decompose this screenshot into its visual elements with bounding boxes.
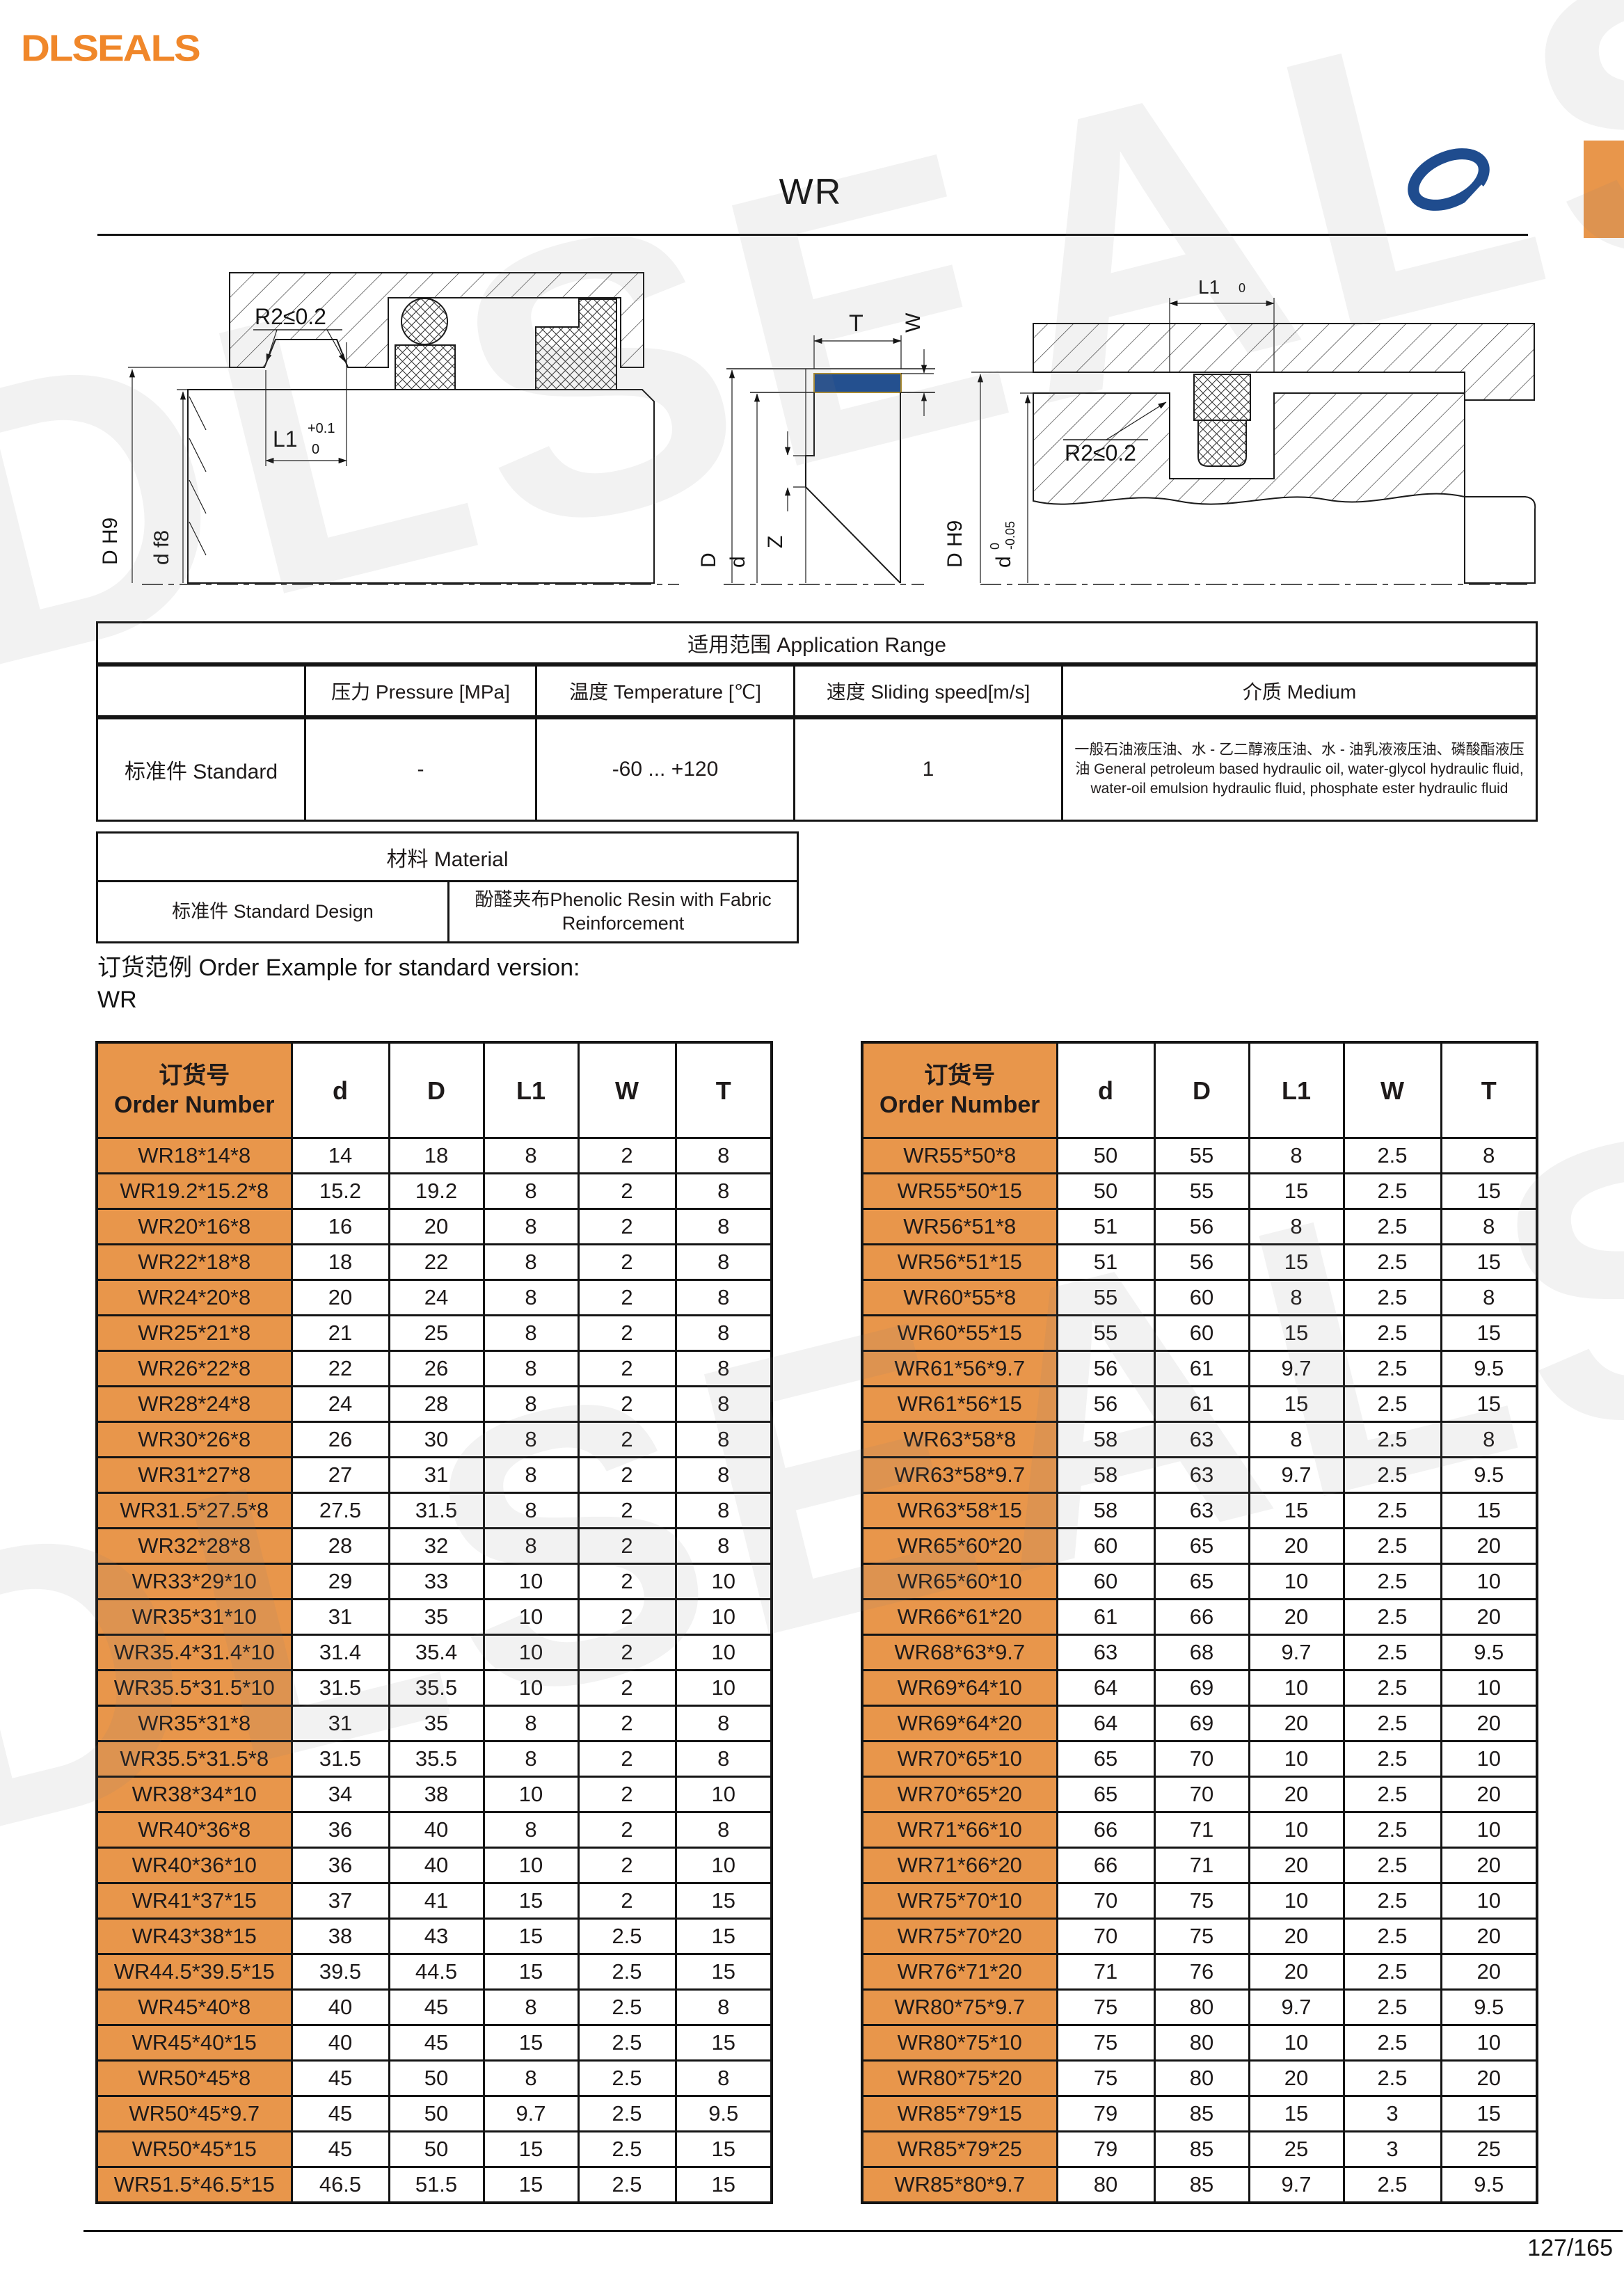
table-row: WR45*40*154045152.515 xyxy=(97,2025,772,2061)
size-table-left: 订货号 Order Number d D L1 W T WR18*14*8141… xyxy=(95,1041,773,2204)
order-number-cell: WR38*34*10 xyxy=(97,1777,292,1812)
dimension-cell: 10 xyxy=(1249,1741,1344,1777)
right-l1-tol: 0 xyxy=(1239,281,1245,295)
dimension-cell: 15 xyxy=(484,2025,578,2061)
order-number-cell: WR69*64*20 xyxy=(862,1706,1057,1741)
dimension-cell: 2.5 xyxy=(1344,2061,1441,2096)
dimension-cell: 15 xyxy=(676,2167,772,2203)
dimension-cell: 15 xyxy=(1441,1245,1537,1280)
dimension-cell: 21 xyxy=(292,1316,389,1351)
dimension-cell: 63 xyxy=(1154,1458,1249,1493)
dimension-cell: 10 xyxy=(1249,1812,1344,1848)
dimension-cell: 8 xyxy=(1441,1138,1537,1174)
dimension-cell: 26 xyxy=(389,1351,484,1387)
col-header-D: D xyxy=(1154,1042,1249,1138)
dimension-cell: 60 xyxy=(1154,1316,1249,1351)
dimension-cell: 31 xyxy=(292,1706,389,1741)
dimension-cell: 8 xyxy=(484,1706,578,1741)
dimension-cell: 10 xyxy=(676,1635,772,1671)
dimension-cell: 75 xyxy=(1057,1990,1154,2025)
empty-header-cell xyxy=(97,664,305,717)
table-row: WR70*65*206570202.520 xyxy=(862,1777,1537,1812)
dimension-cell: 8 xyxy=(484,1812,578,1848)
dimension-cell: 2.5 xyxy=(578,2096,676,2132)
dimension-cell: 50 xyxy=(1057,1138,1154,1174)
order-number-header: 订货号 Order Number xyxy=(862,1042,1057,1138)
dimension-cell: 79 xyxy=(1057,2096,1154,2132)
dimension-cell: 34 xyxy=(292,1777,389,1812)
order-number-cell: WR80*75*20 xyxy=(862,2061,1057,2096)
table-row: WR40*36*83640828 xyxy=(97,1812,772,1848)
dimension-cell: 2.5 xyxy=(1344,1919,1441,1954)
table-row: WR61*56*9.756619.72.59.5 xyxy=(862,1351,1537,1387)
table-row: WR38*34*10343810210 xyxy=(97,1777,772,1812)
material-title: 材料 Material xyxy=(97,833,798,882)
dimension-cell: 15 xyxy=(676,1954,772,1990)
order-number-cell: WR30*26*8 xyxy=(97,1422,292,1458)
dimension-cell: 2 xyxy=(578,1316,676,1351)
dimension-cell: 2.5 xyxy=(1344,1777,1441,1812)
technical-drawings: D H9 d f8 L1 +0.1 0 R2≤0.2 xyxy=(90,257,1552,612)
dimension-cell: 2.5 xyxy=(1344,1209,1441,1245)
dimension-cell: 40 xyxy=(389,1848,484,1883)
table-row: WR35*31*10313510210 xyxy=(97,1600,772,1635)
dimension-cell: 10 xyxy=(484,1600,578,1635)
dimension-cell: 10 xyxy=(1441,1812,1537,1848)
dimension-cell: 18 xyxy=(389,1138,484,1174)
dimension-cell: 8 xyxy=(1249,1280,1344,1316)
dimension-cell: 24 xyxy=(389,1280,484,1316)
dimension-cell: 31 xyxy=(389,1458,484,1493)
dimension-cell: 66 xyxy=(1154,1600,1249,1635)
table-row: WR25*21*82125828 xyxy=(97,1316,772,1351)
dimension-cell: 38 xyxy=(389,1777,484,1812)
dimension-cell: 9.5 xyxy=(1441,1990,1537,2025)
dimension-cell: 15.2 xyxy=(292,1174,389,1209)
dimension-cell: 41 xyxy=(389,1883,484,1919)
table-row: WR50*45*8455082.58 xyxy=(97,2061,772,2096)
dimension-cell: 8 xyxy=(484,1351,578,1387)
second-seal-section xyxy=(536,299,616,390)
sliding-speed-value: 1 xyxy=(795,717,1062,821)
dimension-cell: 2.5 xyxy=(1344,1564,1441,1600)
order-number-cell: WR80*75*9.7 xyxy=(862,1990,1057,2025)
wiper-seal-section xyxy=(395,345,455,390)
dimension-cell: 2 xyxy=(578,1812,676,1848)
dimension-cell: 18 xyxy=(292,1245,389,1280)
order-number-cell: WR85*80*9.7 xyxy=(862,2167,1057,2203)
dimension-cell: 29 xyxy=(292,1564,389,1600)
right-l1-label: L1 xyxy=(1198,276,1220,298)
dimension-cell: 51.5 xyxy=(389,2167,484,2203)
dimension-cell: 9.5 xyxy=(1441,2167,1537,2203)
dimension-cell: 50 xyxy=(1057,1174,1154,1209)
table-row: WR60*55*8556082.58 xyxy=(862,1280,1537,1316)
order-number-cell: WR50*45*9.7 xyxy=(97,2096,292,2132)
dimension-cell: 35.5 xyxy=(389,1741,484,1777)
t-label: T xyxy=(849,310,863,337)
table-row: WR22*18*81822828 xyxy=(97,1245,772,1280)
dimension-cell: 8 xyxy=(1249,1138,1344,1174)
dimension-cell: 2.5 xyxy=(1344,1600,1441,1635)
right-label-d: d xyxy=(992,556,1015,568)
dimension-cell: 8 xyxy=(484,1741,578,1777)
dimension-cell: 3 xyxy=(1344,2132,1441,2167)
dimension-cell: 8 xyxy=(484,1138,578,1174)
dimension-cell: 24 xyxy=(292,1387,389,1422)
table-row: WR43*38*153843152.515 xyxy=(97,1919,772,1954)
dimension-cell: 9.7 xyxy=(1249,1351,1344,1387)
dimension-cell: 63 xyxy=(1057,1635,1154,1671)
dimension-cell: 80 xyxy=(1154,1990,1249,2025)
dimension-cell: 45 xyxy=(389,1990,484,2025)
dimension-cell: 60 xyxy=(1154,1280,1249,1316)
dimension-cell: 10 xyxy=(1249,2025,1344,2061)
table-row: WR70*65*106570102.510 xyxy=(862,1741,1537,1777)
dimension-cell: 16 xyxy=(292,1209,389,1245)
dimension-cell: 15 xyxy=(676,1883,772,1919)
dimension-cell: 33 xyxy=(389,1564,484,1600)
order-number-cell: WR28*24*8 xyxy=(97,1387,292,1422)
table-row: WR71*66*206671202.520 xyxy=(862,1848,1537,1883)
dimension-cell: 15 xyxy=(1441,1387,1537,1422)
dimension-cell: 2.5 xyxy=(1344,1529,1441,1564)
pressure-value: - xyxy=(305,717,536,821)
table-row: WR50*45*9.745509.72.59.5 xyxy=(97,2096,772,2132)
dimension-cell: 10 xyxy=(676,1848,772,1883)
dimension-cell: 45 xyxy=(292,2132,389,2167)
dimension-cell: 20 xyxy=(1249,1848,1344,1883)
table-row: WR56*51*155156152.515 xyxy=(862,1245,1537,1280)
housing-top-block xyxy=(1033,324,1534,400)
dimension-cell: 15 xyxy=(484,1919,578,1954)
dimension-cell: 45 xyxy=(292,2096,389,2132)
dimension-cell: 51 xyxy=(1057,1209,1154,1245)
right-label-d-tol-upper: 0 xyxy=(988,543,1002,550)
dimension-cell: 64 xyxy=(1057,1671,1154,1706)
order-number-cell: WR18*14*8 xyxy=(97,1138,292,1174)
dimension-cell: 35.5 xyxy=(389,1671,484,1706)
dimension-cell: 15 xyxy=(1249,1174,1344,1209)
dimension-cell: 19.2 xyxy=(389,1174,484,1209)
order-number-cell: WR45*40*15 xyxy=(97,2025,292,2061)
table-row: WR40*36*10364010210 xyxy=(97,1848,772,1883)
dimension-cell: 2 xyxy=(578,1280,676,1316)
dimension-cell: 8 xyxy=(484,2061,578,2096)
dimension-cell: 27.5 xyxy=(292,1493,389,1529)
dimension-cell: 8 xyxy=(676,1422,772,1458)
table-row: WR61*56*155661152.515 xyxy=(862,1387,1537,1422)
dimension-cell: 56 xyxy=(1057,1387,1154,1422)
dimension-cell: 20 xyxy=(1249,1529,1344,1564)
dimension-cell: 39.5 xyxy=(292,1954,389,1990)
order-number-cell: WR35*31*10 xyxy=(97,1600,292,1635)
order-number-cell: WR85*79*25 xyxy=(862,2132,1057,2167)
o-ring-section xyxy=(401,298,447,344)
dimension-cell: 8 xyxy=(484,1387,578,1422)
dimension-cell: 56 xyxy=(1154,1245,1249,1280)
mid-label-d: d xyxy=(726,556,749,568)
dimension-cell: 37 xyxy=(292,1883,389,1919)
dimension-cell: 9.5 xyxy=(1441,1635,1537,1671)
dimension-cell: 66 xyxy=(1057,1812,1154,1848)
dimension-cell: 70 xyxy=(1154,1777,1249,1812)
dimension-cell: 71 xyxy=(1154,1848,1249,1883)
table-row: WR45*40*8404582.58 xyxy=(97,1990,772,2025)
seal-ring-icon xyxy=(1406,146,1496,216)
dimension-cell: 8 xyxy=(484,1174,578,1209)
dimension-cell: 80 xyxy=(1154,2061,1249,2096)
table-row: WR66*61*206166202.520 xyxy=(862,1600,1537,1635)
dimension-cell: 20 xyxy=(1441,1706,1537,1741)
order-number-cell: WR68*63*9.7 xyxy=(862,1635,1057,1671)
dimension-cell: 2.5 xyxy=(1344,1387,1441,1422)
dimension-cell: 10 xyxy=(484,1671,578,1706)
dimension-cell: 2 xyxy=(578,1883,676,1919)
dimension-cell: 20 xyxy=(1441,1954,1537,1990)
dimension-cell: 15 xyxy=(484,2132,578,2167)
dimension-cell: 2 xyxy=(578,1493,676,1529)
dimension-cell: 2 xyxy=(578,1245,676,1280)
title-rule xyxy=(97,234,1528,236)
dimension-cell: 2 xyxy=(578,1387,676,1422)
dimension-cell: 80 xyxy=(1057,2167,1154,2203)
rod-outline xyxy=(1465,497,1535,583)
dimension-cell: 75 xyxy=(1057,2025,1154,2061)
dimension-cell: 31 xyxy=(292,1600,389,1635)
dimension-cell: 36 xyxy=(292,1848,389,1883)
right-label-d-tol-lower: -0.05 xyxy=(1003,521,1017,550)
dimension-cell: 15 xyxy=(484,2167,578,2203)
dimension-cell: 65 xyxy=(1154,1529,1249,1564)
dimension-cell: 20 xyxy=(1441,1529,1537,1564)
dimension-cell: 2 xyxy=(578,1174,676,1209)
dimension-cell: 63 xyxy=(1154,1493,1249,1529)
dimension-cell: 76 xyxy=(1154,1954,1249,1990)
order-number-cell: WR61*56*9.7 xyxy=(862,1351,1057,1387)
dimension-cell: 75 xyxy=(1057,2061,1154,2096)
catalog-page: DLSEALS WR xyxy=(0,0,1624,2296)
dimension-cell: 15 xyxy=(1441,1493,1537,1529)
order-number-cell: WR80*75*10 xyxy=(862,2025,1057,2061)
order-number-cell: WR63*58*8 xyxy=(862,1422,1057,1458)
dimension-cell: 45 xyxy=(389,2025,484,2061)
order-number-cell: WR71*66*20 xyxy=(862,1848,1057,1883)
dimension-cell: 45 xyxy=(292,2061,389,2096)
dimension-cell: 2.5 xyxy=(1344,1280,1441,1316)
dimension-cell: 14 xyxy=(292,1138,389,1174)
dimension-cell: 31.5 xyxy=(389,1493,484,1529)
dimension-cell: 15 xyxy=(484,1954,578,1990)
order-example-line2: WR xyxy=(97,984,580,1016)
dimension-cell: 8 xyxy=(676,1812,772,1848)
dimension-cell: 9.5 xyxy=(1441,1351,1537,1387)
dimension-cell: 2.5 xyxy=(1344,1883,1441,1919)
dimension-cell: 61 xyxy=(1154,1351,1249,1387)
wiper-seal-upper xyxy=(1194,374,1250,420)
order-example-line1: 订货范例 Order Example for standard version: xyxy=(97,952,580,984)
l1-tol-upper: +0.1 xyxy=(308,421,335,436)
dimension-cell: 10 xyxy=(1441,2025,1537,2061)
dimension-cell: 8 xyxy=(676,1280,772,1316)
drawing-left-section: D H9 d f8 L1 +0.1 0 R2≤0.2 xyxy=(99,273,679,584)
dimension-cell: 2.5 xyxy=(1344,1493,1441,1529)
col-header-L1: L1 xyxy=(1249,1042,1344,1138)
dimension-cell: 8 xyxy=(676,1387,772,1422)
col-header-W: W xyxy=(578,1042,676,1138)
order-number-cell: WR71*66*10 xyxy=(862,1812,1057,1848)
col-header-T: T xyxy=(1441,1042,1537,1138)
dimension-cell: 70 xyxy=(1057,1919,1154,1954)
footer-rule xyxy=(83,2230,1623,2232)
pressure-header: 压力 Pressure [MPa] xyxy=(305,664,536,717)
drawing-free-profile: T W Z D d xyxy=(697,310,935,584)
dimension-cell: 28 xyxy=(292,1529,389,1564)
dimension-cell: 10 xyxy=(1249,1671,1344,1706)
dimension-cell: 8 xyxy=(676,1351,772,1387)
dimension-cell: 65 xyxy=(1154,1564,1249,1600)
dimension-cell: 10 xyxy=(484,1564,578,1600)
dimension-cell: 20 xyxy=(292,1280,389,1316)
dimension-cell: 2.5 xyxy=(1344,2025,1441,2061)
dimension-cell: 2.5 xyxy=(1344,1741,1441,1777)
temperature-header: 温度 Temperature [℃] xyxy=(536,664,795,717)
dimension-cell: 58 xyxy=(1057,1493,1154,1529)
dimension-cell: 35 xyxy=(389,1706,484,1741)
dimension-cell: 55 xyxy=(1057,1316,1154,1351)
dimension-cell: 15 xyxy=(676,2132,772,2167)
dimension-cell: 8 xyxy=(676,2061,772,2096)
order-number-cell: WR75*70*10 xyxy=(862,1883,1057,1919)
dimension-cell: 70 xyxy=(1057,1883,1154,1919)
dimension-cell: 10 xyxy=(1441,1883,1537,1919)
z-label: Z xyxy=(764,536,787,548)
table-row: WR28*24*82428828 xyxy=(97,1387,772,1422)
dim-label-D-H9: D H9 xyxy=(99,518,122,565)
dimension-cell: 36 xyxy=(292,1812,389,1848)
dimension-cell: 55 xyxy=(1154,1174,1249,1209)
dimension-cell: 9.7 xyxy=(484,2096,578,2132)
table-row: WR63*58*155863152.515 xyxy=(862,1493,1537,1529)
order-number-cell: WR55*50*15 xyxy=(862,1174,1057,1209)
dimension-cell: 22 xyxy=(292,1351,389,1387)
order-number-cell: WR69*64*10 xyxy=(862,1671,1057,1706)
dimension-cell: 2.5 xyxy=(578,2025,676,2061)
table-row: WR32*28*82832828 xyxy=(97,1529,772,1564)
mid-label-D: D xyxy=(697,552,720,568)
dimension-cell: 8 xyxy=(1441,1422,1537,1458)
table-row: WR63*58*8586382.58 xyxy=(862,1422,1537,1458)
col-header-W: W xyxy=(1344,1042,1441,1138)
dimension-cell: 31.5 xyxy=(292,1741,389,1777)
dimension-cell: 79 xyxy=(1057,2132,1154,2167)
dimension-cell: 85 xyxy=(1154,2096,1249,2132)
table-row: WR20*16*81620828 xyxy=(97,1209,772,1245)
dimension-cell: 10 xyxy=(1441,1564,1537,1600)
dimension-cell: 2.5 xyxy=(1344,1706,1441,1741)
dimension-cell: 51 xyxy=(1057,1245,1154,1280)
dimension-cell: 2 xyxy=(578,1706,676,1741)
table-row: WR75*70*207075202.520 xyxy=(862,1919,1537,1954)
dimension-cell: 65 xyxy=(1057,1777,1154,1812)
medium-header: 介质 Medium xyxy=(1062,664,1537,717)
table-row: WR30*26*82630828 xyxy=(97,1422,772,1458)
dimension-cell: 35.4 xyxy=(389,1635,484,1671)
dimension-cell: 10 xyxy=(484,1848,578,1883)
order-number-cell: WR75*70*20 xyxy=(862,1919,1057,1954)
dimension-cell: 80 xyxy=(1154,2025,1249,2061)
dimension-cell: 8 xyxy=(484,1422,578,1458)
dimension-cell: 8 xyxy=(676,1316,772,1351)
col-header-L1: L1 xyxy=(484,1042,578,1138)
dimension-cell: 2.5 xyxy=(1344,1848,1441,1883)
dimension-cell: 2 xyxy=(578,1138,676,1174)
dimension-cell: 40 xyxy=(292,2025,389,2061)
dimension-cell: 10 xyxy=(1441,1741,1537,1777)
order-number-cell: WR25*21*8 xyxy=(97,1316,292,1351)
table-row: WR85*80*9.780859.72.59.5 xyxy=(862,2167,1537,2203)
order-number-cell: WR35.5*31.5*10 xyxy=(97,1671,292,1706)
dimension-cell: 60 xyxy=(1057,1564,1154,1600)
table-row: WR35.4*31.4*1031.435.410210 xyxy=(97,1635,772,1671)
dimension-cell: 2 xyxy=(578,1351,676,1387)
dimension-cell: 9.5 xyxy=(1441,1458,1537,1493)
dimension-cell: 31.5 xyxy=(292,1671,389,1706)
dimension-cell: 2 xyxy=(578,1422,676,1458)
dimension-cell: 64 xyxy=(1057,1706,1154,1741)
order-number-cell: WR50*45*8 xyxy=(97,2061,292,2096)
order-number-cell: WR60*55*15 xyxy=(862,1316,1057,1351)
dimension-cell: 10 xyxy=(676,1777,772,1812)
dimension-cell: 2.5 xyxy=(1344,1812,1441,1848)
dimension-cell: 32 xyxy=(389,1529,484,1564)
dimension-cell: 8 xyxy=(484,1529,578,1564)
dimension-cell: 2.5 xyxy=(578,2132,676,2167)
standard-row-label: 标准件 Standard xyxy=(97,717,305,821)
dimension-cell: 85 xyxy=(1154,2132,1249,2167)
order-number-cell: WR70*65*20 xyxy=(862,1777,1057,1812)
page-number: 127/165 xyxy=(1404,2235,1613,2262)
dimension-cell: 8 xyxy=(484,1458,578,1493)
application-range-table: 适用范围 Application Range 压力 Pressure [MPa]… xyxy=(96,621,1538,822)
l1-label: L1 xyxy=(273,426,298,452)
dimension-cell: 2 xyxy=(578,1209,676,1245)
dimension-cell: 20 xyxy=(1249,1777,1344,1812)
dimension-cell: 2 xyxy=(578,1671,676,1706)
dimension-cell: 75 xyxy=(1154,1919,1249,1954)
dimension-cell: 28 xyxy=(389,1387,484,1422)
application-range-title: 适用范围 Application Range xyxy=(97,623,1537,665)
col-header-D: D xyxy=(389,1042,484,1138)
order-number-cell: WR22*18*8 xyxy=(97,1245,292,1280)
shaft-outline xyxy=(188,390,654,583)
table-row: WR19.2*15.2*815.219.2828 xyxy=(97,1174,772,1209)
dimension-cell: 58 xyxy=(1057,1422,1154,1458)
dimension-cell: 15 xyxy=(1249,1387,1344,1422)
dimension-cell: 20 xyxy=(389,1209,484,1245)
dimension-cell: 56 xyxy=(1057,1351,1154,1387)
order-number-cell: WR43*38*15 xyxy=(97,1919,292,1954)
dimension-cell: 2.5 xyxy=(1344,1351,1441,1387)
table-row: WR80*75*107580102.510 xyxy=(862,2025,1537,2061)
dimension-cell: 20 xyxy=(1441,1777,1537,1812)
dimension-cell: 2.5 xyxy=(1344,1954,1441,1990)
dimension-cell: 15 xyxy=(1249,1316,1344,1351)
order-number-cell: WR35.5*31.5*8 xyxy=(97,1741,292,1777)
dimension-cell: 10 xyxy=(676,1600,772,1635)
right-r2-label: R2≤0.2 xyxy=(1065,440,1136,465)
order-number-cell: WR35*31*8 xyxy=(97,1706,292,1741)
